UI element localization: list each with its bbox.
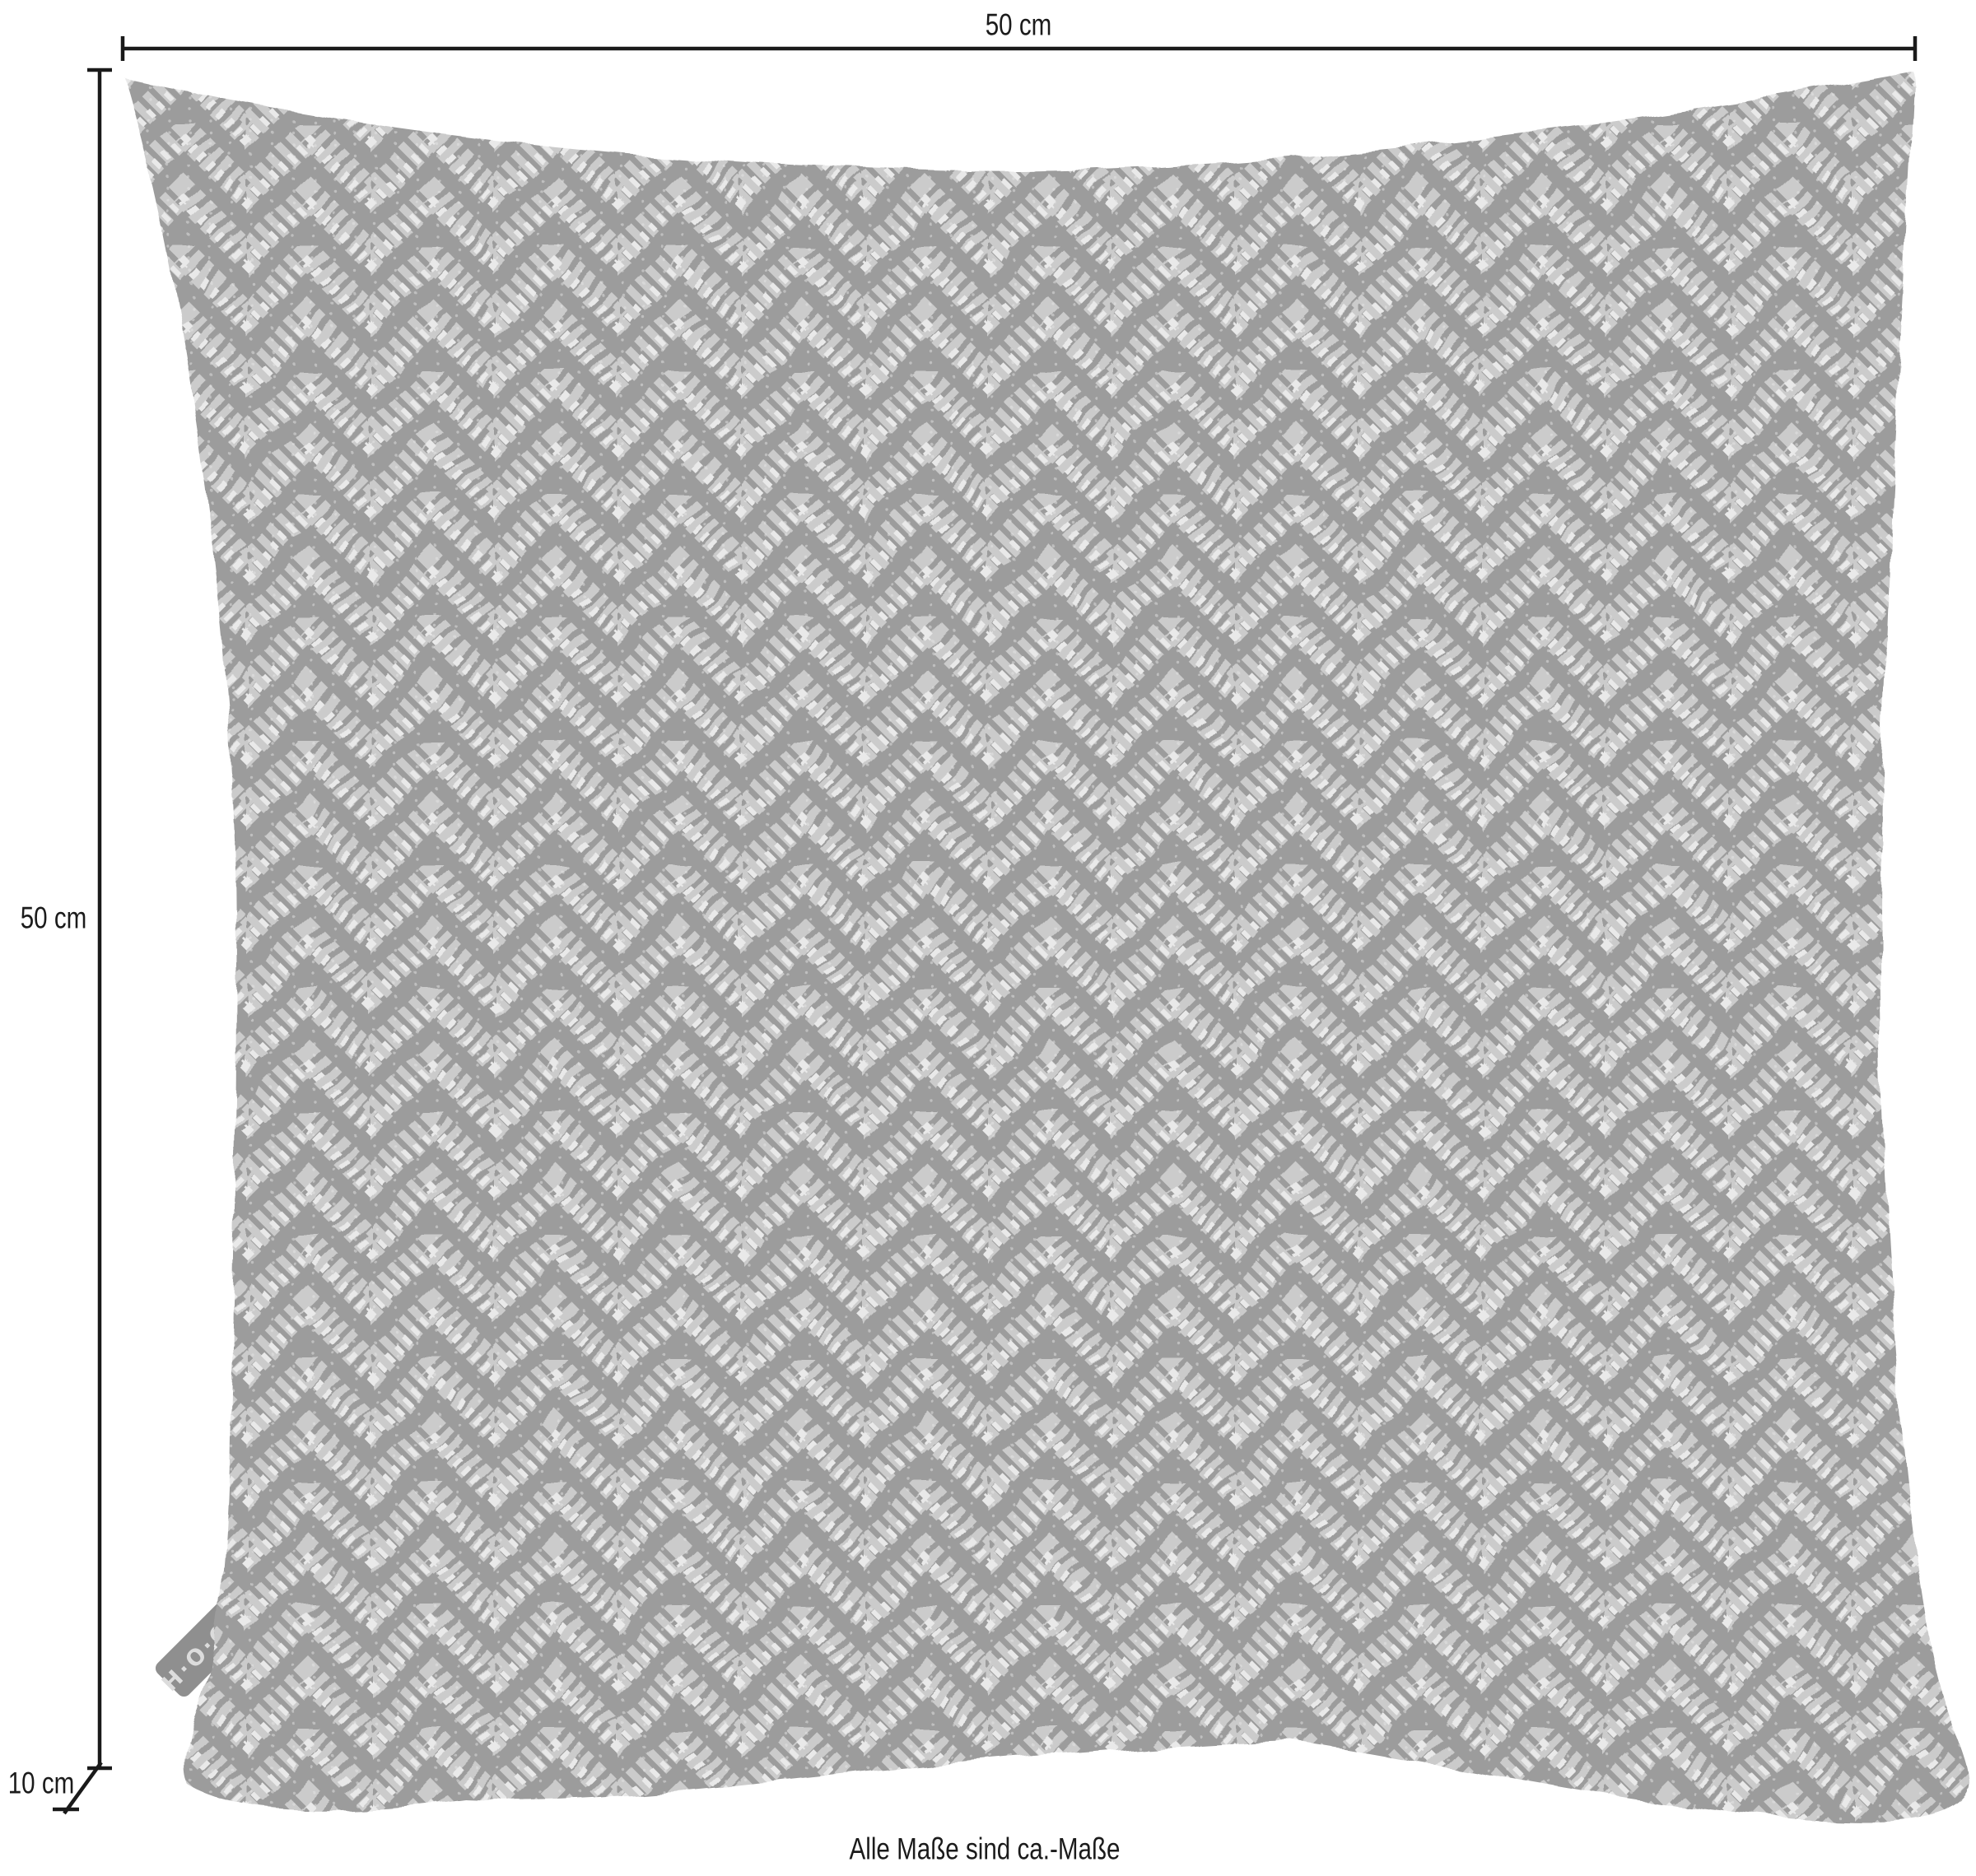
measurement-disclaimer: Alle Maße sind ca.-Maße [850, 1834, 1121, 1864]
product-dimension-diagram: H·O·C·K 50 cm 50 cm 10 cm Alle Maße sind… [0, 0, 1976, 1876]
height-dimension-line [87, 70, 112, 1768]
height-dimension-label: 50 cm [21, 903, 87, 933]
cushion-texture-dots [125, 72, 1969, 1821]
cushion-illustration: H·O·C·K [0, 0, 1976, 1876]
width-dimension-label: 50 cm [986, 10, 1052, 40]
depth-dimension-label: 10 cm [8, 1768, 75, 1799]
cushion-body [125, 72, 1969, 1821]
